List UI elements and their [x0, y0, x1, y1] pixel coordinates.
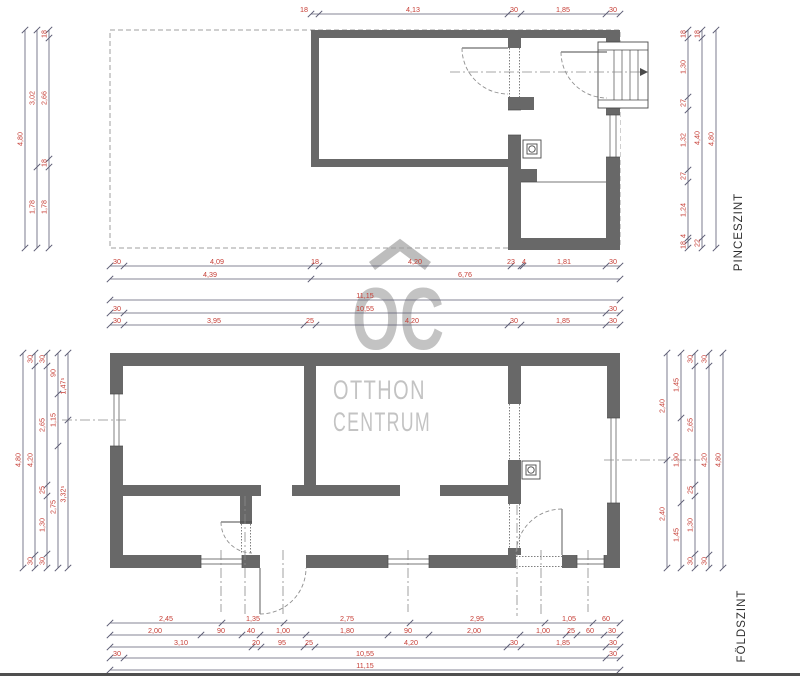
dimension-label: 6,76 [458, 270, 472, 279]
dimension-label: 30 [113, 316, 121, 325]
dimension-label: 1,15 [49, 413, 58, 427]
floorplan-page: OC OTTHON CENTRUM [0, 0, 800, 676]
dimension-label: 1,30 [679, 60, 688, 74]
dimension-label: 4,80 [714, 453, 723, 467]
dimension-label: 40 [247, 626, 255, 635]
dimension-label: 95 [278, 638, 286, 647]
dimension-label: 1,80 [340, 626, 354, 635]
dimension-label: 30 [686, 557, 695, 565]
dimension-label: 23 [507, 257, 515, 266]
label-foldszint: FÖLDSZINT [736, 590, 748, 663]
dimension-label: 1,00 [536, 626, 550, 635]
basement-walls [311, 30, 620, 250]
dimension-label: 30 [700, 557, 709, 565]
dimension-label: 18 [300, 5, 308, 14]
dimension-label: 10,55 [356, 649, 374, 658]
dimension-label: 4,20 [405, 316, 419, 325]
dimension-label: 30 [609, 304, 617, 313]
dimension-label: 30 [609, 649, 617, 658]
dimension-label: 30 [38, 355, 47, 363]
dimension-label: 30 [608, 626, 616, 635]
dimension-label: 4,13 [406, 5, 420, 14]
dimension-label: 4,20 [700, 453, 709, 467]
dimension-label: 4,20 [408, 257, 422, 266]
dimension-label: 18 [40, 159, 49, 167]
dimension-label: 30 [609, 638, 617, 647]
dimension-label: 30 [700, 355, 709, 363]
label-pinceszint: PINCESZINT [733, 193, 745, 271]
dimension-label: 3,02 [28, 91, 37, 105]
dimension-label: 30 [686, 355, 695, 363]
dimension-label: 2,75 [49, 500, 58, 514]
dimension-label: 1,24 [679, 203, 688, 217]
dimension-label: 1,47⁵ [59, 377, 68, 394]
dimension-label: 1,85 [556, 316, 570, 325]
dimension-label: 4,80 [16, 132, 25, 146]
window-right [607, 418, 620, 503]
basement-stairs [450, 42, 648, 108]
dimension-label: 2,65 [686, 418, 695, 432]
dimension-label: 3,10 [174, 638, 188, 647]
dimension-label: 90 [49, 369, 58, 377]
chimney-lower [522, 461, 540, 479]
dimension-label: 2,40 [658, 399, 667, 413]
dimension-label: 4,20 [26, 453, 35, 467]
dimension-label: 30 [38, 557, 47, 565]
dimension-label: 4,40 [693, 131, 702, 145]
dimension-label: 1,45 [672, 528, 681, 542]
dimension-label: 30 [26, 355, 35, 363]
dimension-label: 10,55 [356, 304, 374, 313]
dimension-label: 4,09 [210, 257, 224, 266]
dimension-label: 30 [510, 638, 518, 647]
dimension-label: 60 [602, 614, 610, 623]
dimension-label: 4,80 [14, 453, 23, 467]
dimension-label: 3,32⁵ [59, 485, 68, 502]
dimension-label: 2,45 [159, 614, 173, 623]
dimension-label: 25 [686, 486, 695, 494]
axis-centerlines [62, 420, 700, 616]
dimension-label: 11,15 [356, 291, 373, 300]
dimension-label: 1,32 [679, 133, 688, 147]
dimension-label: 20 [252, 638, 260, 647]
dimension-label: 18 [679, 241, 688, 249]
watermark-line1: OTTHON [333, 375, 426, 405]
dimension-label: 30 [26, 557, 35, 565]
dimension-label: 90 [404, 626, 412, 635]
dimension-label: 4,80 [707, 132, 716, 146]
dimension-label: 1,30 [686, 518, 695, 532]
dimension-label: 22 [693, 239, 702, 247]
watermark-line2: CENTRUM [333, 407, 431, 437]
dimension-label: 4 [522, 257, 526, 266]
dimension-label: 2,95 [470, 614, 484, 623]
dimension-label: 18 [40, 30, 49, 38]
dimension-label: 2,00 [148, 626, 162, 635]
dimension-label: 27 [679, 99, 688, 107]
dimension-label: 25 [567, 626, 575, 635]
dimension-label: 30 [510, 5, 518, 14]
dimension-label: 18 [679, 30, 688, 38]
dimension-label: 1,85 [556, 638, 570, 647]
chimney-upper [523, 140, 541, 158]
dimension-label: 25 [306, 316, 314, 325]
dimension-label: 1,78 [28, 200, 37, 214]
dimension-label: 1,05 [562, 614, 576, 623]
dimension-label: 18 [693, 30, 702, 38]
dimension-label: 30 [609, 257, 617, 266]
dimension-label: 3,95 [207, 316, 221, 325]
dimension-label: 11,15 [356, 661, 373, 670]
dimension-label: 25 [305, 638, 313, 647]
window-bottom-2 [388, 555, 429, 568]
dimension-label: 1,30 [38, 518, 47, 532]
dimension-label: 2,40 [658, 507, 667, 521]
dimension-label: 1,81 [557, 257, 571, 266]
dimension-label: 30 [609, 5, 617, 14]
dimension-label: 30 [113, 257, 121, 266]
dimension-label: 30 [113, 304, 121, 313]
dimension-label: 30 [609, 316, 617, 325]
dimension-label: 2,00 [467, 626, 481, 635]
dimension-label: 18 [311, 257, 319, 266]
dimension-label: 1,85 [556, 5, 570, 14]
window-bottom-1 [201, 555, 242, 568]
dimension-label: 27 [679, 172, 688, 180]
dimension-label: 1,78 [40, 200, 49, 214]
basement-plan [110, 30, 648, 250]
dimension-label: 4 [679, 234, 688, 238]
basement-doors [462, 48, 607, 98]
dimension-label: 30 [113, 649, 121, 658]
otthon-centrum-watermark: OC OTTHON CENTRUM [333, 245, 444, 437]
dimension-label: 2,66 [40, 91, 49, 105]
dimension-label: 25 [38, 486, 47, 494]
dimension-label: 2,75 [340, 614, 354, 623]
dimension-label: 1,35 [246, 614, 260, 623]
dimension-label: 2,65 [38, 418, 47, 432]
basement-window [606, 115, 620, 157]
window-bottom-3 [577, 555, 604, 568]
dimension-label: 90 [217, 626, 225, 635]
dimension-label: 1,90 [672, 453, 681, 467]
dimension-label: 30 [510, 316, 518, 325]
dimension-label: 4,20 [404, 638, 418, 647]
dimension-label: 1,00 [276, 626, 290, 635]
dimension-label: 4,39 [203, 270, 217, 279]
dimension-label: 1,45 [672, 378, 681, 392]
footprint-outline [110, 30, 620, 248]
dimension-label: 60 [586, 626, 594, 635]
